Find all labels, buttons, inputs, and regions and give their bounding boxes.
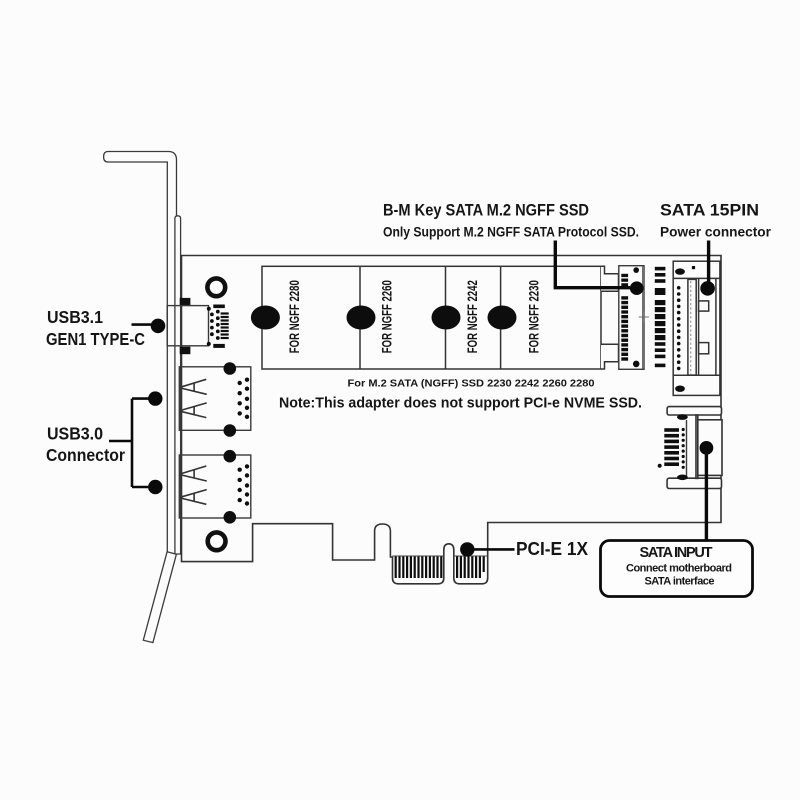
- svg-text:FOR NGFF 2242: FOR NGFF 2242: [465, 280, 480, 353]
- svg-text:GEN1 TYPE-C: GEN1 TYPE-C: [46, 329, 145, 349]
- svg-text:SATA 15PIN: SATA 15PIN: [660, 201, 759, 220]
- svg-text:PCI-E 1X: PCI-E 1X: [516, 538, 589, 559]
- svg-text:B-M Key SATA M.2 NGFF SSD: B-M Key SATA M.2 NGFF SSD: [383, 201, 589, 220]
- svg-text:For M.2 SATA (NGFF) SSD 2230 2: For M.2 SATA (NGFF) SSD 2230 2242 2260 2…: [348, 379, 595, 390]
- svg-text:Connect motherboard: Connect motherboard: [626, 562, 732, 574]
- svg-text:SATA INPUT: SATA INPUT: [640, 545, 713, 561]
- svg-text:FOR NGFF 2260: FOR NGFF 2260: [379, 280, 394, 353]
- svg-text:FOR NGFF 2280: FOR NGFF 2280: [287, 280, 302, 353]
- svg-text:Note:This adapter does not sup: Note:This adapter does not support PCI-e…: [279, 395, 642, 412]
- svg-text:Connector: Connector: [46, 445, 125, 465]
- svg-text:USB3.1: USB3.1: [47, 307, 103, 327]
- svg-text:Only Support M.2 NGFF SATA Pro: Only Support M.2 NGFF SATA Protocol SSD.: [383, 225, 639, 240]
- svg-text:SATA interface: SATA interface: [645, 576, 715, 588]
- svg-text:USB3.0: USB3.0: [47, 424, 103, 444]
- svg-text:Power connector: Power connector: [660, 225, 772, 240]
- svg-text:FOR NGFF 2230: FOR NGFF 2230: [527, 280, 542, 353]
